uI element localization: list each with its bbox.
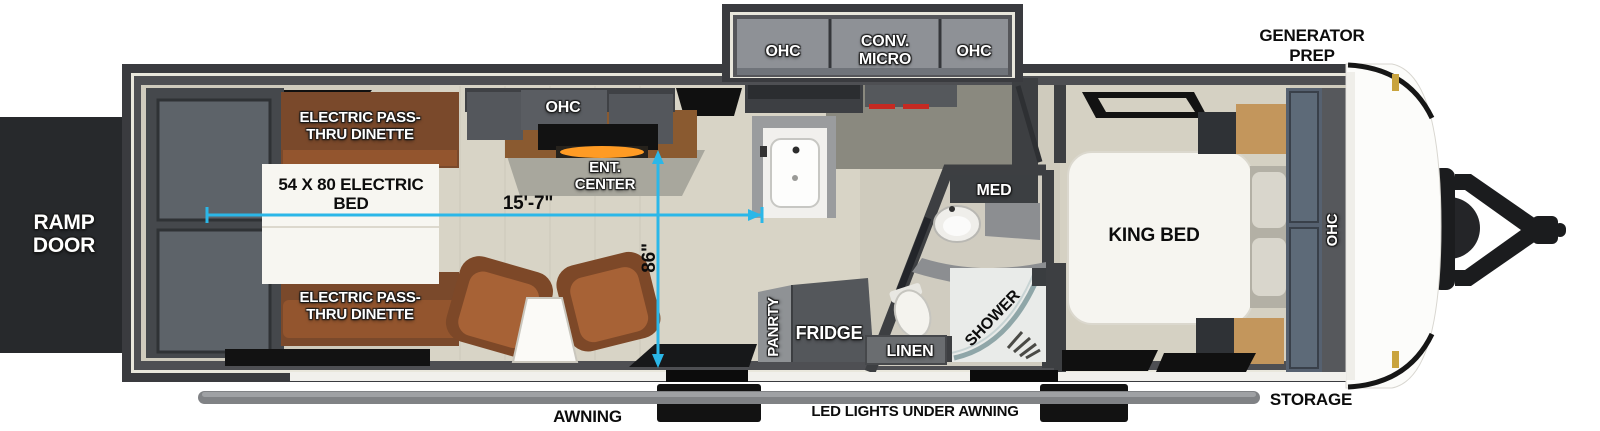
pantry-fridge [758,278,874,362]
storage-door [970,370,1058,382]
bottom-exterior [198,370,1346,422]
clearance-light [1392,351,1399,368]
pillow [1252,172,1286,228]
fridge-shape [792,278,874,362]
electric-bed-shape [262,164,439,284]
pantry-shape [758,285,792,362]
front-cap [1346,64,1566,388]
fireplace-glow [560,146,644,158]
pillow [1252,238,1286,296]
ramp-door-block [0,117,128,353]
nightstand-top [1236,104,1288,154]
king-bed-shape [1068,152,1252,324]
entry-door [666,370,748,382]
med-cabinet-shape [950,175,1038,203]
cooktop-accent [869,104,895,109]
kitchen-bumpout [722,4,1023,82]
floorplan: RAMP DOOR GENERATOR PREP OHC CONV. MICRO… [0,0,1600,431]
clearance-light [1392,74,1399,91]
bedroom-ohc-shape [1322,88,1348,372]
linen-shape [866,336,946,364]
floorplan-drawing [0,0,1600,431]
